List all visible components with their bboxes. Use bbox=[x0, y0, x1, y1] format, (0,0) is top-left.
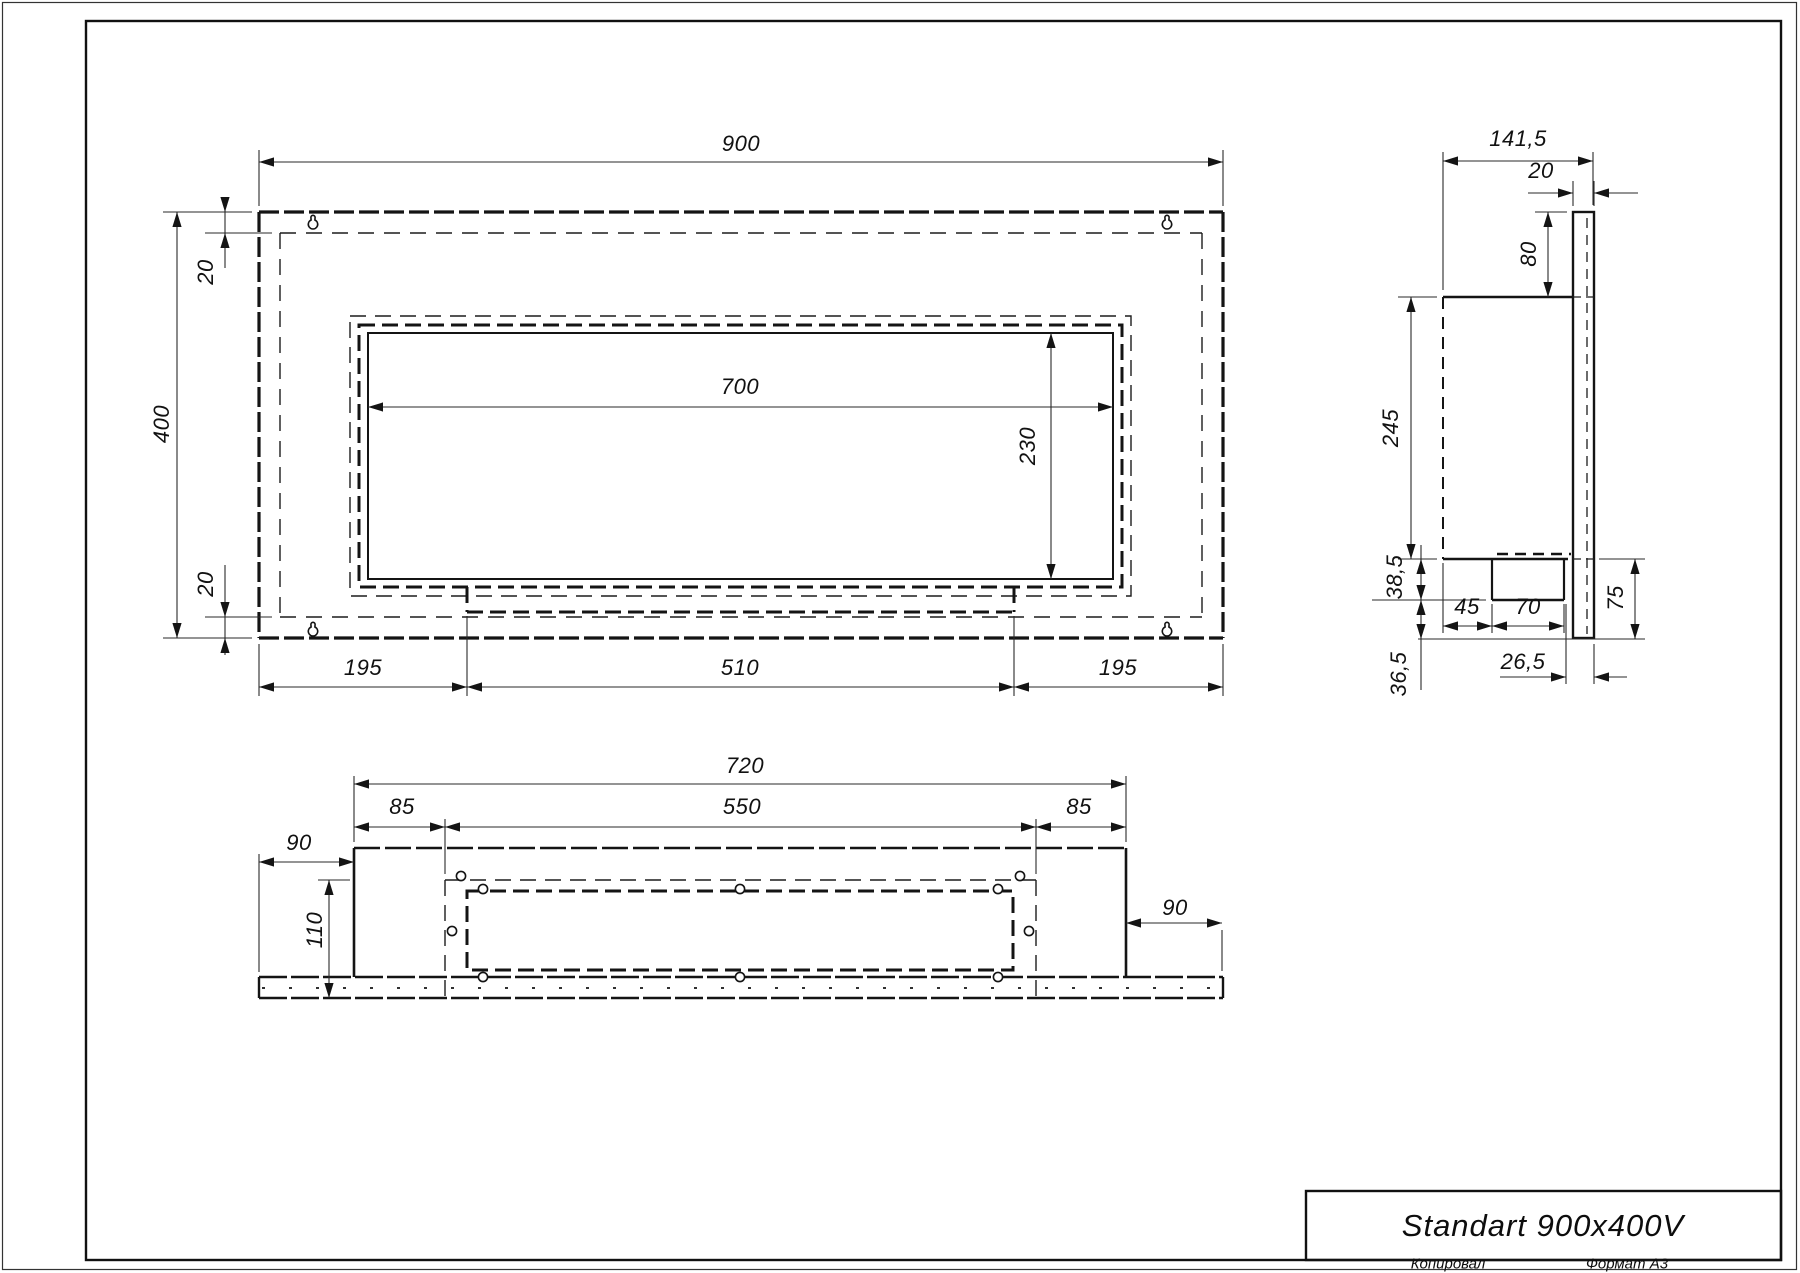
dim-front-bottom-center: 510 bbox=[721, 655, 759, 681]
dimension-arrow-icon bbox=[259, 157, 274, 166]
drawing-sheet: 900 400 20 20 700 230 195 510 195 141,5 … bbox=[0, 0, 1800, 1273]
dimension-arrow-icon bbox=[354, 779, 369, 788]
dimension-arrow-icon bbox=[1416, 585, 1425, 600]
dim-bottom-inset-right: 85 bbox=[1066, 794, 1091, 820]
screw-hole-icon bbox=[478, 972, 487, 981]
front-opening-frame-thin bbox=[350, 316, 1131, 596]
dim-side-bottom-drop: 36,5 bbox=[1386, 652, 1412, 697]
dimension-arrow-icon bbox=[1046, 333, 1055, 348]
dimension-arrow-icon bbox=[1477, 621, 1492, 630]
dimension-arrow-icon bbox=[1549, 621, 1564, 630]
dimension-arrow-icon bbox=[1492, 621, 1507, 630]
dimension-arrow-icon bbox=[172, 623, 181, 638]
screw-hole-icon bbox=[993, 884, 1002, 893]
dimension-arrow-icon bbox=[999, 682, 1014, 691]
dimension-arrow-icon bbox=[1416, 624, 1425, 639]
copied-label: Копировал bbox=[1411, 1256, 1486, 1273]
drawing-linework bbox=[0, 0, 1800, 1273]
dimension-arrow-icon bbox=[1416, 559, 1425, 574]
dimension-arrow-icon bbox=[172, 212, 181, 227]
dimension-arrow-icon bbox=[1551, 672, 1566, 681]
dim-front-width: 900 bbox=[722, 131, 760, 157]
dimension-arrow-icon bbox=[1443, 621, 1458, 630]
title-block-product-name: Standart 900x400V bbox=[1402, 1208, 1684, 1244]
dimension-arrow-icon bbox=[1630, 624, 1639, 639]
dimension-arrow-icon bbox=[220, 602, 229, 617]
dim-side-plate-thickness: 20 bbox=[1528, 158, 1553, 184]
dimension-arrow-icon bbox=[220, 233, 229, 248]
screw-hole-icon bbox=[478, 884, 487, 893]
dim-front-offset-top: 20 bbox=[193, 259, 219, 284]
dim-front-offset-bottom: 20 bbox=[193, 571, 219, 596]
dim-front-bottom-left: 195 bbox=[344, 655, 382, 681]
dimension-arrow-icon bbox=[1630, 559, 1639, 574]
dim-side-back-offset: 26,5 bbox=[1501, 649, 1546, 675]
dimension-arrow-icon bbox=[259, 857, 274, 866]
dimension-arrow-icon bbox=[368, 402, 383, 411]
dimension-arrow-icon bbox=[1046, 564, 1055, 579]
screw-hole-icon bbox=[993, 972, 1002, 981]
dim-side-burner-depth: 38,5 bbox=[1382, 555, 1408, 600]
dimension-arrow-icon bbox=[1207, 918, 1222, 927]
keyhole-slot-icon bbox=[1162, 215, 1171, 229]
dimension-arrow-icon bbox=[1543, 282, 1552, 297]
dim-side-plate-below: 75 bbox=[1603, 585, 1629, 610]
keyhole-slot-icon bbox=[308, 622, 317, 636]
dimension-arrow-icon bbox=[1111, 822, 1126, 831]
screw-hole-icon bbox=[447, 926, 456, 935]
keyhole-slot-icon bbox=[308, 215, 317, 229]
dimension-arrow-icon bbox=[220, 197, 229, 212]
dim-bottom-inset-left: 85 bbox=[389, 794, 414, 820]
dimension-arrow-icon bbox=[1594, 672, 1609, 681]
dim-bottom-body-width: 720 bbox=[726, 753, 764, 779]
dimension-arrow-icon bbox=[1406, 297, 1415, 312]
front-opening-frame-heavy bbox=[359, 325, 1122, 587]
dimension-arrow-icon bbox=[324, 880, 333, 895]
dimension-arrow-icon bbox=[324, 983, 333, 998]
dim-bottom-flange-left: 90 bbox=[286, 830, 311, 856]
dim-side-top-drop: 80 bbox=[1516, 241, 1542, 266]
dim-bottom-opening-width: 550 bbox=[723, 794, 761, 820]
dimension-arrow-icon bbox=[1021, 822, 1036, 831]
bottom-burner-outline bbox=[467, 891, 1013, 970]
dimension-arrow-icon bbox=[259, 682, 274, 691]
dimension-arrow-icon bbox=[1443, 156, 1458, 165]
dimension-arrow-icon bbox=[1578, 156, 1593, 165]
paper-border bbox=[3, 3, 1797, 1270]
side-wall-plate bbox=[1573, 212, 1594, 638]
dimension-arrow-icon bbox=[1416, 600, 1425, 615]
dim-side-burner-width: 70 bbox=[1515, 594, 1540, 620]
keyhole-slot-icon bbox=[1162, 622, 1171, 636]
dimension-arrow-icon bbox=[1098, 402, 1113, 411]
dim-side-body-height: 245 bbox=[1378, 409, 1404, 447]
screw-hole-icon bbox=[735, 884, 744, 893]
dimension-arrow-icon bbox=[339, 857, 354, 866]
dimension-arrow-icon bbox=[430, 822, 445, 831]
dimension-arrow-icon bbox=[1036, 822, 1051, 831]
screw-hole-icon bbox=[1015, 871, 1024, 880]
dim-bottom-flange-right: 90 bbox=[1162, 895, 1187, 921]
dimension-arrow-icon bbox=[1126, 918, 1141, 927]
dimension-arrow-icon bbox=[445, 822, 460, 831]
screw-hole-icon bbox=[456, 871, 465, 880]
dim-front-height: 400 bbox=[149, 405, 175, 443]
dim-side-depth: 141,5 bbox=[1489, 126, 1547, 152]
screw-hole-icon bbox=[1024, 926, 1033, 935]
dimension-arrow-icon bbox=[1208, 682, 1223, 691]
dimension-arrow-icon bbox=[1014, 682, 1029, 691]
dimension-arrow-icon bbox=[1558, 188, 1573, 197]
sheet-frame bbox=[86, 21, 1781, 1260]
dim-front-opening-width: 700 bbox=[721, 374, 759, 400]
dim-front-opening-height: 230 bbox=[1015, 427, 1041, 465]
dim-front-bottom-right: 195 bbox=[1099, 655, 1137, 681]
dim-side-front-offset: 45 bbox=[1454, 594, 1479, 620]
format-label: Формат А3 bbox=[1586, 1256, 1668, 1273]
dim-bottom-depth: 110 bbox=[302, 912, 328, 949]
dimension-arrow-icon bbox=[354, 822, 369, 831]
dimension-arrow-icon bbox=[452, 682, 467, 691]
dimension-arrow-icon bbox=[220, 638, 229, 653]
dimension-arrow-icon bbox=[1594, 188, 1609, 197]
dimension-arrow-icon bbox=[1208, 157, 1223, 166]
dimension-arrow-icon bbox=[1111, 779, 1126, 788]
dimension-arrow-icon bbox=[467, 682, 482, 691]
dimension-arrow-icon bbox=[1543, 212, 1552, 227]
screw-hole-icon bbox=[735, 972, 744, 981]
front-opening bbox=[368, 333, 1113, 579]
